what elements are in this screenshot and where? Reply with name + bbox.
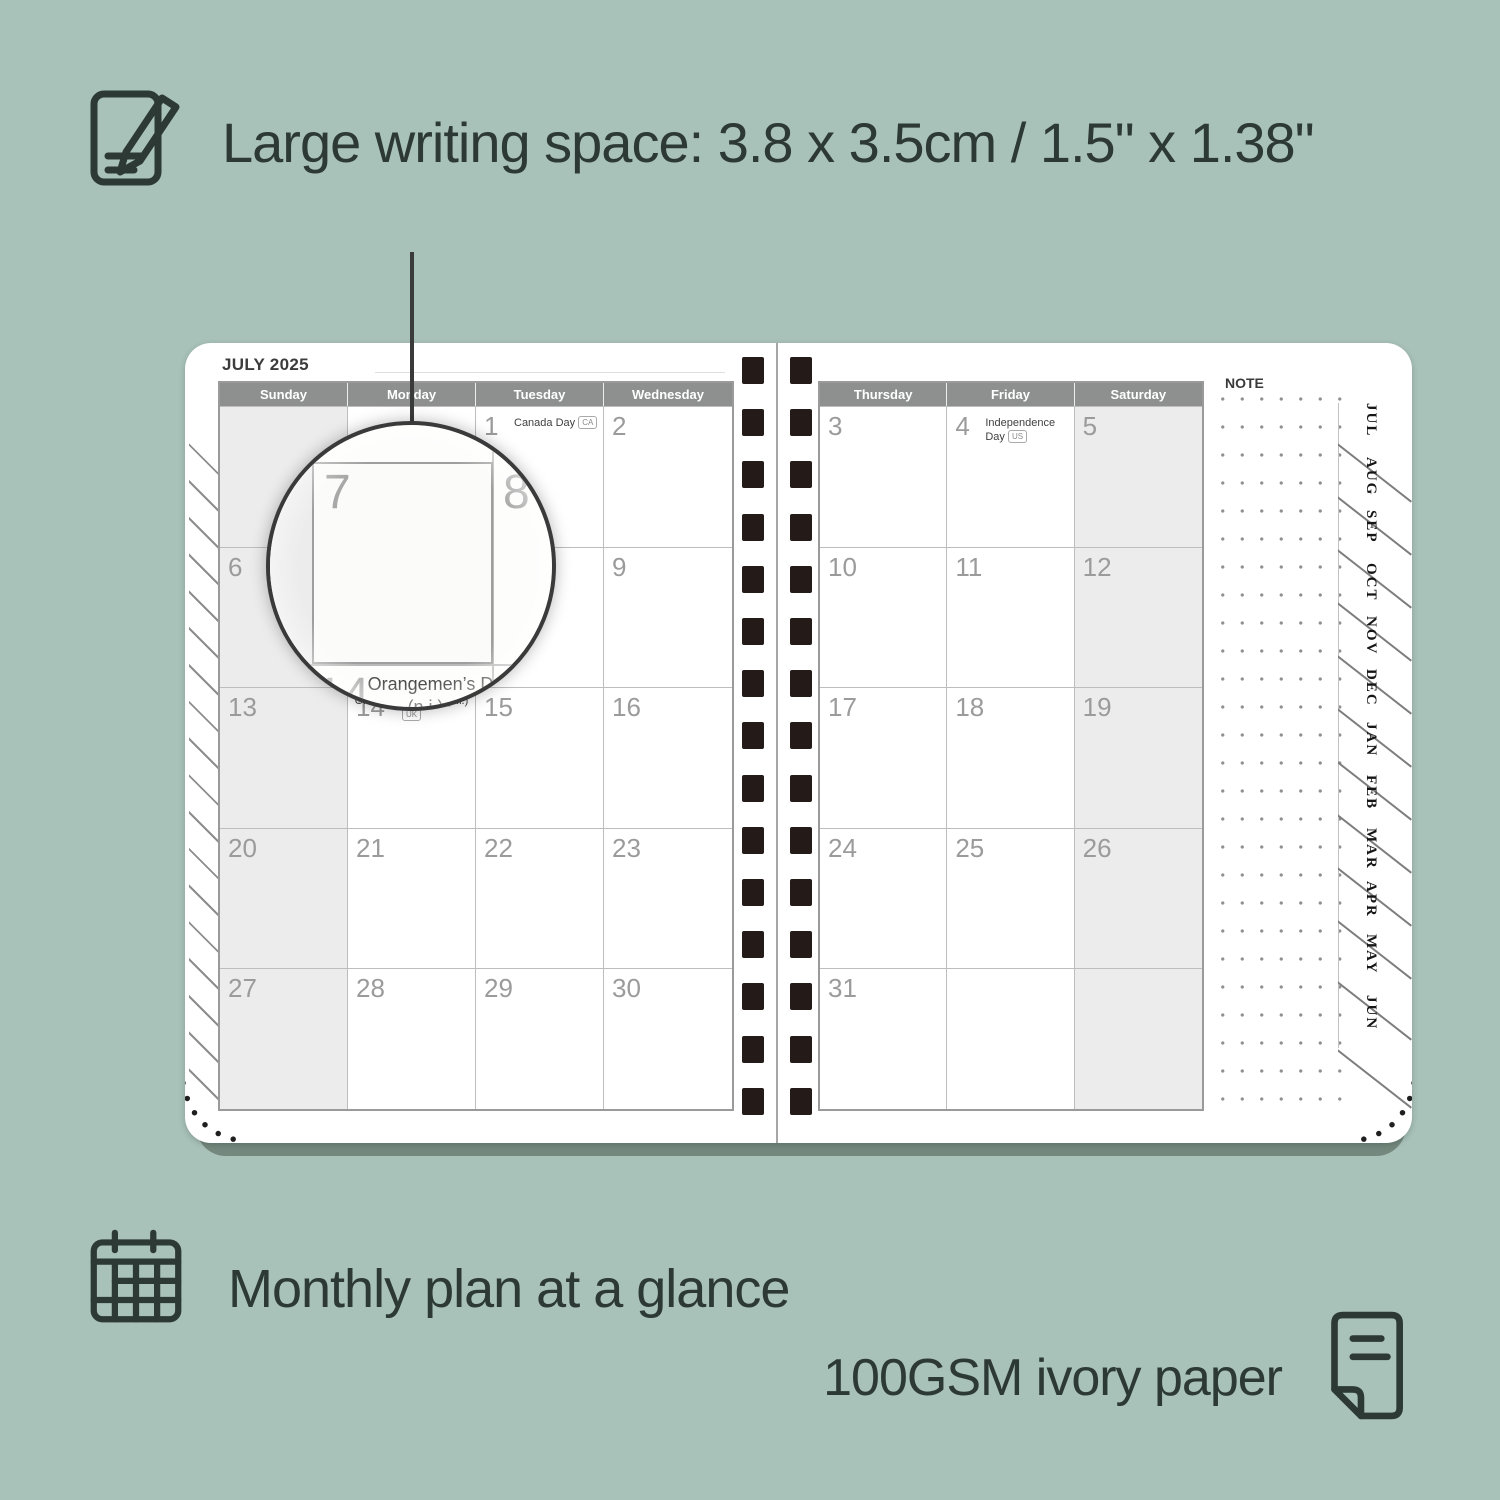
- spiral-binding: [742, 357, 812, 1143]
- day-number: 3: [828, 411, 842, 442]
- day-header-friday: Friday: [947, 383, 1074, 406]
- holiday-label: Canada Day CA: [514, 416, 601, 430]
- day-number: 21: [356, 833, 385, 864]
- binding-hole: [742, 409, 764, 436]
- magnifier-edge-fade: [270, 425, 552, 707]
- calendar-cell-17: 17: [820, 687, 947, 828]
- paper-sheet-icon: [1320, 1310, 1406, 1422]
- month-tab-oct: OCT: [1362, 563, 1379, 602]
- magnifier-circle: 7 8 14 Orangemen’s Day (n.i.) UK: [266, 421, 556, 711]
- day-number: 12: [1083, 552, 1112, 583]
- day-number: 31: [828, 973, 857, 1004]
- calendar-cell-3: 3: [820, 406, 947, 547]
- day-header-saturday: Saturday: [1075, 383, 1202, 406]
- binding-hole: [790, 670, 812, 697]
- calendar-grid-right: ThursdayFridaySaturday34Independence Day…: [818, 381, 1204, 1111]
- day-number: 30: [612, 973, 641, 1004]
- calendar-cell-27: 27: [220, 968, 348, 1109]
- country-badge: US: [1008, 430, 1027, 443]
- binding-hole: [790, 357, 812, 384]
- binding-hole: [790, 461, 812, 488]
- binding-hole: [742, 1036, 764, 1063]
- calendar-cell-30: 30: [604, 968, 732, 1109]
- binding-hole: [790, 879, 812, 906]
- day-number: 11: [955, 552, 982, 583]
- binding-hole: [742, 879, 764, 906]
- binding-hole: [742, 618, 764, 645]
- month-tab-may: MAY: [1362, 934, 1379, 974]
- calendar-cell-31: 31: [820, 968, 947, 1109]
- writing-space-headline: Large writing space: 3.8 x 3.5cm / 1.5" …: [222, 110, 1314, 175]
- calendar-cell-28: 28: [348, 968, 476, 1109]
- product-image: Large writing space: 3.8 x 3.5cm / 1.5" …: [0, 0, 1500, 1500]
- binding-hole: [790, 931, 812, 958]
- calendar-cell-5: 5: [1075, 406, 1202, 547]
- tab-separator: [1338, 1043, 1412, 1109]
- calendar-cell-25: 25: [947, 828, 1074, 969]
- calendar-cell-24: 24: [820, 828, 947, 969]
- month-tab-aug: AUG: [1362, 457, 1379, 496]
- calendar-cell: [947, 968, 1074, 1109]
- binding-hole: [742, 461, 764, 488]
- month-tab-strip: JULAUGSEPOCTNOVDECJANFEBMARAPRMAYJUN: [1338, 343, 1412, 1143]
- binding-hole: [790, 775, 812, 802]
- calendar-cell-23: 23: [604, 828, 732, 969]
- day-number: 16: [612, 692, 641, 723]
- binding-hole: [742, 827, 764, 854]
- day-number: 20: [228, 833, 257, 864]
- day-number: 23: [612, 833, 641, 864]
- calendar-cell-13: 13: [220, 687, 348, 828]
- calendar-cell-12: 12: [1075, 547, 1202, 688]
- day-number: 29: [484, 973, 513, 1004]
- day-number: 10: [828, 552, 857, 583]
- binding-hole: [790, 514, 812, 541]
- binding-hole: [790, 566, 812, 593]
- binding-hole: [742, 983, 764, 1010]
- binding-hole: [742, 357, 764, 384]
- calendar-cell-10: 10: [820, 547, 947, 688]
- calendar-cell-26: 26: [1075, 828, 1202, 969]
- page-edge-hatching: [189, 440, 218, 1105]
- calendar-cell-2: 2: [604, 406, 732, 547]
- note-dot-grid: [1207, 379, 1349, 1125]
- binding-hole: [790, 409, 812, 436]
- binding-hole: [742, 514, 764, 541]
- calendar-cell-19: 19: [1075, 687, 1202, 828]
- month-tab-jun: JUN: [1362, 995, 1379, 1030]
- day-number: 22: [484, 833, 513, 864]
- calendar-cell: [1075, 968, 1202, 1109]
- day-number: 25: [955, 833, 984, 864]
- calendar-cell-22: 22: [476, 828, 604, 969]
- binding-hole: [790, 618, 812, 645]
- day-header-sunday: Sunday: [220, 383, 348, 406]
- binding-hole: [790, 983, 812, 1010]
- day-number: 13: [228, 692, 257, 723]
- day-header-thursday: Thursday: [820, 383, 947, 406]
- calendar-cell-11: 11: [947, 547, 1074, 688]
- notepad-pencil-icon: [86, 76, 186, 188]
- month-tab-feb: FEB: [1362, 775, 1379, 810]
- calendar-cell-18: 18: [947, 687, 1074, 828]
- calendar-icon: [88, 1228, 184, 1326]
- month-title: JULY 2025: [222, 355, 309, 375]
- calendar-cell-15: 15: [476, 687, 604, 828]
- month-tab-sep: SEP: [1362, 510, 1379, 544]
- binding-hole: [742, 931, 764, 958]
- month-tab-mar: MAR: [1362, 828, 1379, 870]
- month-tab-apr: APR: [1362, 881, 1379, 918]
- binding-hole: [742, 670, 764, 697]
- magnifier-pointer-line: [410, 252, 414, 428]
- title-rule: [375, 372, 725, 373]
- calendar-cell-9: 9: [604, 547, 732, 688]
- day-number: 27: [228, 973, 257, 1004]
- day-number: 2: [612, 411, 626, 442]
- binding-hole: [790, 1088, 812, 1115]
- day-header-wednesday: Wednesday: [604, 383, 732, 406]
- binding-hole: [790, 1036, 812, 1063]
- day-header-tuesday: Tuesday: [476, 383, 604, 406]
- day-number: 17: [828, 692, 857, 723]
- calendar-cell-21: 21: [348, 828, 476, 969]
- day-number: 5: [1083, 411, 1097, 442]
- binding-hole: [790, 722, 812, 749]
- monthly-plan-headline: Monthly plan at a glance: [228, 1258, 789, 1320]
- binding-hole: [742, 722, 764, 749]
- day-number: 18: [955, 692, 984, 723]
- month-tab-dec: DEC: [1362, 669, 1379, 707]
- binding-hole: [790, 827, 812, 854]
- day-number: 19: [1083, 692, 1112, 723]
- day-number: 28: [356, 973, 385, 1004]
- binding-hole: [742, 1088, 764, 1115]
- day-number: 6: [228, 552, 242, 583]
- month-tab-jul: JUL: [1362, 403, 1379, 437]
- country-badge: CA: [578, 416, 597, 429]
- binding-hole: [742, 566, 764, 593]
- calendar-cell-16: 16: [604, 687, 732, 828]
- day-number: 9: [612, 552, 626, 583]
- month-tab-jan: JAN: [1362, 722, 1379, 757]
- calendar-cell-20: 20: [220, 828, 348, 969]
- month-tab-nov: NOV: [1362, 616, 1379, 655]
- paper-headline: 100GSM ivory paper: [823, 1348, 1282, 1408]
- day-number: 4: [955, 411, 969, 442]
- calendar-cell-29: 29: [476, 968, 604, 1109]
- binding-hole: [742, 775, 764, 802]
- day-number: 24: [828, 833, 857, 864]
- calendar-cell-4: 4Independence Day US: [947, 406, 1074, 547]
- day-number: 26: [1083, 833, 1112, 864]
- holiday-label: Independence Day US: [985, 416, 1071, 445]
